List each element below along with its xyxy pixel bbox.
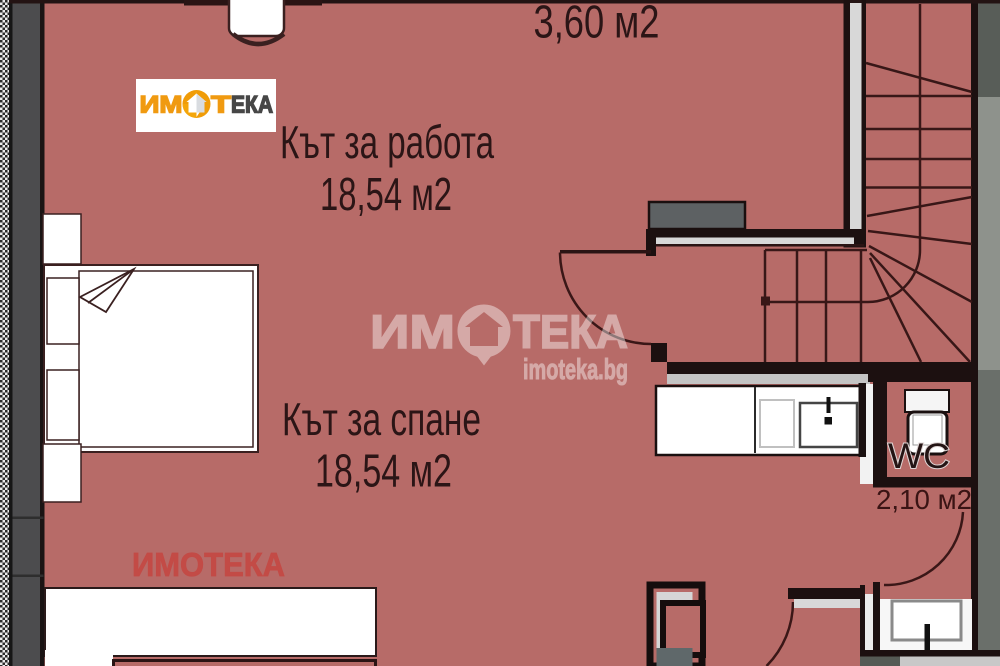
svg-text:Т: Т [211, 92, 231, 119]
svg-text:imoteka.bg: imoteka.bg [523, 354, 628, 386]
svg-text:ТЕКА: ТЕКА [513, 305, 628, 358]
svg-text:Кът за спане: Кът за спане [282, 393, 481, 445]
svg-text:18,54 м2: 18,54 м2 [320, 168, 452, 220]
svg-text:ИМ: ИМ [370, 305, 455, 358]
svg-text:ЕКА: ЕКА [231, 92, 273, 119]
svg-text:18,54 м2: 18,54 м2 [315, 445, 452, 497]
svg-text:ИМОТЕКА: ИМОТЕКА [132, 546, 285, 583]
svg-text:WC: WC [888, 437, 950, 476]
svg-text:3,60 м2: 3,60 м2 [534, 0, 660, 48]
svg-text:Кът за работа: Кът за работа [280, 116, 494, 168]
svg-text:ИМ: ИМ [140, 92, 183, 119]
svg-text:2,10 м2: 2,10 м2 [876, 484, 972, 515]
